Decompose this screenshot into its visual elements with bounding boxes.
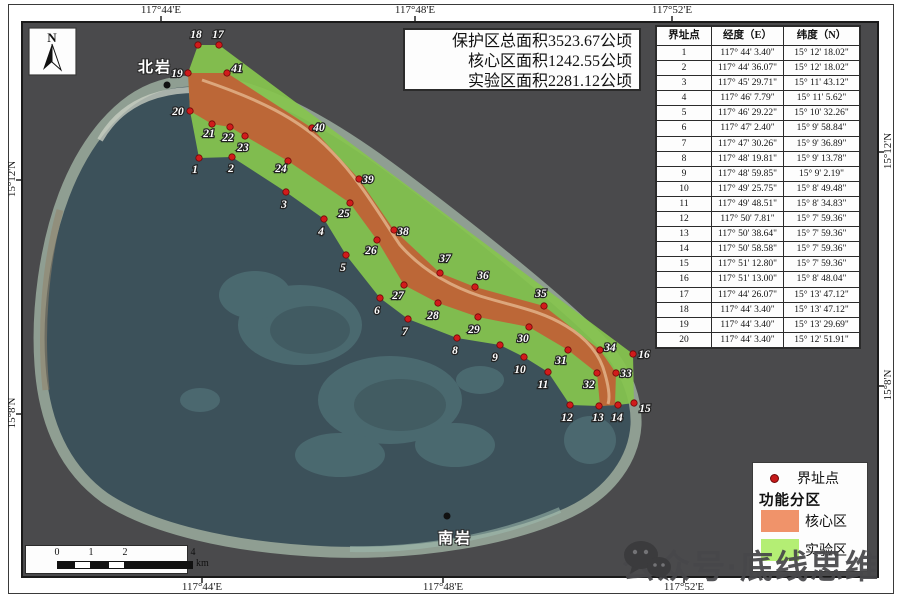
boundary-point-dot xyxy=(405,316,411,322)
boundary-point-number: 30 xyxy=(516,333,529,345)
boundary-point-number: 21 xyxy=(202,128,215,140)
scale-tick-label: 2 xyxy=(123,547,128,558)
boundary-point-number: 33 xyxy=(619,368,632,380)
boundary-point-number: 34 xyxy=(603,342,616,354)
table-cell: 117° 46' 7.79" xyxy=(711,90,783,105)
table-cell: 117° 44' 3.40" xyxy=(711,302,783,317)
table-cell: 15° 9' 2.19" xyxy=(783,166,859,181)
boundary-point-dot xyxy=(454,335,460,341)
boundary-point-dot xyxy=(321,216,327,222)
boundary-point-dot xyxy=(283,189,289,195)
north-arrow: N xyxy=(29,28,76,75)
scale-tick-label: 0 xyxy=(55,547,60,558)
place-dot xyxy=(164,82,171,89)
boundary-point-number: 37 xyxy=(438,253,452,265)
scale-tick-label: 1 xyxy=(89,547,94,558)
table-cell: 15° 9' 36.89" xyxy=(783,136,859,151)
scale-tick-label: 4 xyxy=(191,547,196,558)
table-cell: 8 xyxy=(657,151,711,166)
table-cell: 12 xyxy=(657,211,711,226)
boundary-coordinate-table: 界址点经度（E）纬度（N）1117° 44' 3.40"15° 12' 18.0… xyxy=(655,25,861,349)
boundary-point-dot xyxy=(613,370,619,376)
table-cell: 13 xyxy=(657,226,711,241)
table-cell: 15° 13' 47.12" xyxy=(783,287,859,302)
table-cell: 15° 7' 59.36" xyxy=(783,226,859,241)
table-cell: 15° 12' 18.02" xyxy=(783,45,859,60)
boundary-point-number: 8 xyxy=(452,345,458,357)
table-row: 9117° 48' 59.85"15° 9' 2.19" xyxy=(657,166,859,181)
total-area-line: 保护区总面积3523.67公顷 xyxy=(405,32,632,52)
boundary-point-number: 16 xyxy=(638,349,650,361)
legend-item-label: 核心区 xyxy=(805,511,847,531)
axis-label: 117°48'E xyxy=(380,4,450,16)
table-cell: 15 xyxy=(657,256,711,271)
boundary-point-number: 23 xyxy=(236,142,249,154)
boundary-point-number: 14 xyxy=(611,412,623,424)
legend-group-title: 功能分区 xyxy=(759,489,821,510)
table-row: 20117° 44' 3.40"15° 12' 51.91" xyxy=(657,332,859,347)
table-cell: 19 xyxy=(657,317,711,332)
table-row: 19117° 44' 3.40"15° 13' 29.69" xyxy=(657,317,859,332)
boundary-point-dot xyxy=(497,342,503,348)
boundary-point-number: 20 xyxy=(171,106,184,118)
watermark: 公众号·底线思维 xyxy=(622,540,880,588)
boundary-point-number: 29 xyxy=(467,324,480,336)
table-row: 5117° 46' 29.22"15° 10' 32.26" xyxy=(657,105,859,120)
boundary-point-dot xyxy=(475,314,481,320)
table-header-cell: 界址点 xyxy=(657,27,711,45)
table-cell: 15° 8' 48.04" xyxy=(783,271,859,286)
table-cell: 9 xyxy=(657,166,711,181)
table-row: 17117° 44' 26.07"15° 13' 47.12" xyxy=(657,287,859,302)
boundary-point-dot xyxy=(224,70,230,76)
axis-label: 117°48'E xyxy=(408,581,478,593)
boundary-point-number: 9 xyxy=(492,352,498,364)
boundary-point-number: 4 xyxy=(317,226,324,238)
boundary-point-number: 11 xyxy=(538,379,549,391)
boundary-point-number: 12 xyxy=(561,412,573,424)
core-area-line: 核心区面积1242.55公顷 xyxy=(405,52,632,72)
table-cell: 117° 44' 3.40" xyxy=(711,45,783,60)
boundary-point-dot xyxy=(615,402,621,408)
boundary-point-dot xyxy=(391,227,397,233)
table-row: 14117° 50' 58.58"15° 7' 59.36" xyxy=(657,241,859,256)
boundary-point-dot xyxy=(242,133,248,139)
boundary-point-dot xyxy=(567,402,573,408)
table-row: 13117° 50' 38.64"15° 7' 59.36" xyxy=(657,226,859,241)
boundary-point-dot xyxy=(565,347,571,353)
table-cell: 117° 44' 36.07" xyxy=(711,60,783,75)
table-cell: 4 xyxy=(657,90,711,105)
table-row: 2117° 44' 36.07"15° 12' 18.02" xyxy=(657,60,859,75)
table-cell: 15° 11' 43.12" xyxy=(783,75,859,90)
boundary-point-dot xyxy=(437,270,443,276)
boundary-point-dot xyxy=(216,42,222,48)
table-cell: 117° 45' 29.71" xyxy=(711,75,783,90)
boundary-point-dot xyxy=(347,200,353,206)
boundary-point-dot xyxy=(187,108,193,114)
table-cell: 11 xyxy=(657,196,711,211)
boundary-point-dot xyxy=(401,282,407,288)
boundary-point-dot xyxy=(435,300,441,306)
boundary-point-number: 13 xyxy=(592,412,604,424)
boundary-point-number: 25 xyxy=(337,208,350,220)
axis-label: 117°52'E xyxy=(637,4,707,16)
table-cell: 6 xyxy=(657,120,711,135)
table-cell: 10 xyxy=(657,181,711,196)
boundary-point-number: 5 xyxy=(340,262,346,274)
boundary-point-dot xyxy=(597,347,603,353)
place-label: 南岩 xyxy=(425,527,485,548)
boundary-point-dot xyxy=(374,237,380,243)
boundary-point-dot xyxy=(195,42,201,48)
table-cell: 15° 7' 59.36" xyxy=(783,211,859,226)
table-cell: 1 xyxy=(657,45,711,60)
boundary-point-dot xyxy=(545,369,551,375)
table-row: 6117° 47' 2.40"15° 9' 58.84" xyxy=(657,120,859,135)
area-summary-box: 保护区总面积3523.67公顷 核心区面积1242.55公顷 实验区面积2281… xyxy=(403,28,641,91)
table-cell: 117° 50' 38.64" xyxy=(711,226,783,241)
boundary-point-dot xyxy=(356,176,362,182)
table-cell: 117° 49' 48.51" xyxy=(711,196,783,211)
table-cell: 117° 46' 29.22" xyxy=(711,105,783,120)
table-cell: 117° 47' 30.26" xyxy=(711,136,783,151)
boundary-point-dot xyxy=(472,284,478,290)
axis-label: 117°44'E xyxy=(167,581,237,593)
table-cell: 18 xyxy=(657,302,711,317)
axis-label: 15°8'N xyxy=(882,350,894,420)
table-cell: 15° 9' 58.84" xyxy=(783,120,859,135)
table-row: 3117° 45' 29.71"15° 11' 43.12" xyxy=(657,75,859,90)
table-cell: 117° 51' 12.80" xyxy=(711,256,783,271)
table-cell: 15° 13' 29.69" xyxy=(783,317,859,332)
table-cell: 117° 51' 13.00" xyxy=(711,271,783,286)
legend-point-row: 界址点 xyxy=(753,468,867,486)
boundary-point-number: 3 xyxy=(280,199,287,211)
place-dot xyxy=(444,513,451,520)
boundary-point-number: 36 xyxy=(476,270,489,282)
boundary-point-number: 6 xyxy=(374,305,380,317)
table-row: 15117° 51' 12.80"15° 7' 59.36" xyxy=(657,256,859,271)
table-cell: 117° 50' 58.58" xyxy=(711,241,783,256)
table-row: 16117° 51' 13.00"15° 8' 48.04" xyxy=(657,271,859,286)
table-cell: 15° 12' 51.91" xyxy=(783,332,859,347)
table-header-cell: 纬度（N） xyxy=(783,27,859,45)
table-cell: 117° 44' 3.40" xyxy=(711,332,783,347)
table-header-cell: 经度（E） xyxy=(711,27,783,45)
table-cell: 15° 12' 18.02" xyxy=(783,60,859,75)
table-row: 10117° 49' 25.75"15° 8' 49.48" xyxy=(657,181,859,196)
table-cell: 117° 44' 26.07" xyxy=(711,287,783,302)
boundary-point-number: 27 xyxy=(391,290,405,302)
boundary-point-number: 38 xyxy=(396,226,409,238)
boundary-point-icon xyxy=(770,474,779,483)
table-cell: 15° 8' 49.48" xyxy=(783,181,859,196)
table-cell: 117° 50' 7.81" xyxy=(711,211,783,226)
boundary-point-dot xyxy=(196,155,202,161)
table-row: 8117° 48' 19.81"15° 9' 13.78" xyxy=(657,151,859,166)
boundary-point-dot xyxy=(209,121,215,127)
table-cell: 16 xyxy=(657,271,711,286)
scale-segment xyxy=(91,561,108,569)
table-cell: 15° 7' 59.36" xyxy=(783,241,859,256)
scale-segment xyxy=(108,561,125,569)
table-cell: 15° 9' 13.78" xyxy=(783,151,859,166)
boundary-point-number: 32 xyxy=(582,379,595,391)
boundary-point-number: 26 xyxy=(364,245,377,257)
boundary-point-dot xyxy=(526,324,532,330)
axis-label: 15°12'N xyxy=(882,116,894,186)
boundary-point-number: 2 xyxy=(227,163,234,175)
legend-item: 核心区 xyxy=(753,509,867,535)
table-cell: 20 xyxy=(657,332,711,347)
boundary-point-dot xyxy=(541,303,547,309)
boundary-point-number: 24 xyxy=(274,163,287,175)
table-cell: 17 xyxy=(657,287,711,302)
table-header-row: 界址点经度（E）纬度（N） xyxy=(657,27,859,45)
table-row: 11117° 49' 48.51"15° 8' 34.83" xyxy=(657,196,859,211)
boundary-point-dot xyxy=(630,351,636,357)
boundary-point-number: 39 xyxy=(361,174,374,186)
boundary-point-number: 15 xyxy=(639,403,651,415)
boundary-point-dot xyxy=(229,154,235,160)
table-cell: 117° 49' 25.75" xyxy=(711,181,783,196)
boundary-point-number: 35 xyxy=(534,288,547,300)
legend-point-label: 界址点 xyxy=(797,468,839,488)
table-row: 1117° 44' 3.40"15° 12' 18.02" xyxy=(657,45,859,60)
boundary-point-number: 40 xyxy=(312,122,325,134)
table-cell: 15° 13' 47.12" xyxy=(783,302,859,317)
legend-swatch xyxy=(761,510,799,532)
scale-segment xyxy=(57,561,74,569)
table-row: 18117° 44' 3.40"15° 13' 47.12" xyxy=(657,302,859,317)
boundary-point-dot xyxy=(594,370,600,376)
axis-label: 15°12'N xyxy=(6,144,18,214)
boundary-point-number: 31 xyxy=(554,355,567,367)
table-row: 7117° 47' 30.26"15° 9' 36.89" xyxy=(657,136,859,151)
experiment-area-line: 实验区面积2281.12公顷 xyxy=(405,72,632,92)
boundary-point-number: 18 xyxy=(190,29,202,41)
table-cell: 14 xyxy=(657,241,711,256)
boundary-point-number: 17 xyxy=(212,29,225,41)
wechat-icon xyxy=(622,540,672,582)
scale-segment xyxy=(125,561,193,569)
axis-label: 117°44'E xyxy=(126,4,196,16)
table-row: 4117° 46' 7.79"15° 11' 5.62" xyxy=(657,90,859,105)
table-cell: 117° 48' 19.81" xyxy=(711,151,783,166)
boundary-point-dot xyxy=(377,295,383,301)
table-cell: 7 xyxy=(657,136,711,151)
boundary-point-dot xyxy=(521,354,527,360)
table-cell: 117° 48' 59.85" xyxy=(711,166,783,181)
table-cell: 15° 7' 59.36" xyxy=(783,256,859,271)
scale-bar: km 0124 xyxy=(25,545,188,574)
table-row: 12117° 50' 7.81"15° 7' 59.36" xyxy=(657,211,859,226)
boundary-point-dot xyxy=(596,403,602,409)
boundary-point-dot xyxy=(343,252,349,258)
table-cell: 5 xyxy=(657,105,711,120)
scale-segment xyxy=(74,561,91,569)
table-cell: 117° 47' 2.40" xyxy=(711,120,783,135)
table-cell: 15° 11' 5.62" xyxy=(783,90,859,105)
boundary-point-number: 41 xyxy=(230,63,243,75)
boundary-point-dot xyxy=(227,124,233,130)
place-label: 北岩 xyxy=(125,56,185,77)
boundary-point-dot xyxy=(631,400,637,406)
boundary-point-dot xyxy=(185,70,191,76)
boundary-point-number: 22 xyxy=(221,132,234,144)
table-cell: 3 xyxy=(657,75,711,90)
north-arrow-label: N xyxy=(47,30,57,45)
boundary-point-number: 28 xyxy=(426,310,439,322)
table-cell: 2 xyxy=(657,60,711,75)
boundary-point-number: 1 xyxy=(192,164,198,176)
table-cell: 15° 10' 32.26" xyxy=(783,105,859,120)
table-cell: 15° 8' 34.83" xyxy=(783,196,859,211)
boundary-point-number: 10 xyxy=(514,364,526,376)
table-cell: 117° 44' 3.40" xyxy=(711,317,783,332)
axis-label: 15°8'N xyxy=(6,378,18,448)
map-figure: 1234567891011121314151617181920212223242… xyxy=(0,0,900,600)
scale-unit-label: km xyxy=(196,558,209,569)
